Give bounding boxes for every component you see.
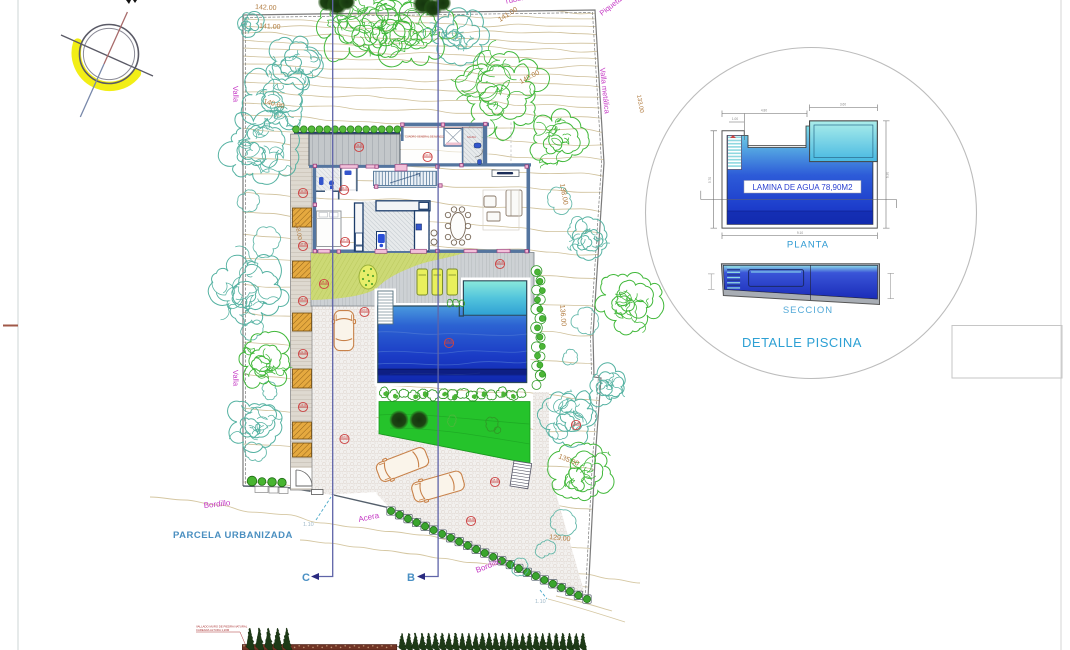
svg-text:122.00: 122.00	[299, 350, 307, 354]
svg-text:5.70: 5.70	[708, 177, 712, 183]
svg-text:B: B	[407, 572, 415, 584]
svg-text:9.10: 9.10	[797, 231, 803, 235]
svg-text:125.00: 125.00	[320, 280, 328, 284]
svg-text:PARCELA URBANIZADA: PARCELA URBANIZADA	[173, 530, 293, 541]
svg-text:119.00: 119.00	[299, 403, 307, 407]
svg-text:127.00: 127.00	[299, 242, 307, 246]
svg-text:132.00: 132.00	[424, 153, 432, 157]
svg-text:118.00: 118.00	[341, 435, 349, 439]
svg-text:118.00: 118.00	[572, 421, 580, 425]
svg-text:1.10: 1.10	[303, 522, 314, 528]
svg-text:6.30: 6.30	[886, 172, 890, 178]
svg-text:130.00: 130.00	[299, 189, 307, 193]
svg-text:124.00: 124.00	[299, 297, 307, 301]
svg-text:115.00: 115.00	[491, 478, 499, 482]
svg-text:142.00: 142.00	[255, 4, 277, 12]
svg-text:LAMINA DE AGUA 78,90M2: LAMINA DE AGUA 78,90M2	[752, 183, 853, 192]
svg-text:132.00: 132.00	[355, 143, 363, 147]
svg-text:141.00: 141.00	[259, 23, 281, 31]
svg-text:127.00: 127.00	[341, 238, 349, 242]
svg-text:122.00: 122.00	[445, 339, 453, 343]
svg-text:SECCION: SECCION	[783, 305, 833, 316]
svg-text:Valla: Valla	[231, 86, 241, 103]
svg-text:1.10: 1.10	[535, 599, 546, 605]
svg-text:4.80: 4.80	[761, 109, 767, 113]
svg-text:DETALLE PISCINA: DETALLE PISCINA	[742, 335, 862, 350]
svg-text:Valla: Valla	[231, 370, 241, 387]
svg-text:113.00: 113.00	[467, 517, 475, 521]
svg-text:1.00: 1.00	[732, 117, 738, 121]
svg-text:130.00: 130.00	[340, 186, 348, 190]
svg-text:CAREADA ALTURA 1,20M: CAREADA ALTURA 1,20M	[196, 628, 230, 632]
svg-text:SAUNA: SAUNA	[467, 135, 476, 139]
svg-text:126.00: 126.00	[496, 260, 504, 264]
svg-text:PLANTA: PLANTA	[787, 240, 829, 251]
svg-text:124.00: 124.00	[361, 308, 369, 312]
svg-text:3.60: 3.60	[840, 103, 846, 107]
svg-text:C: C	[302, 572, 310, 584]
